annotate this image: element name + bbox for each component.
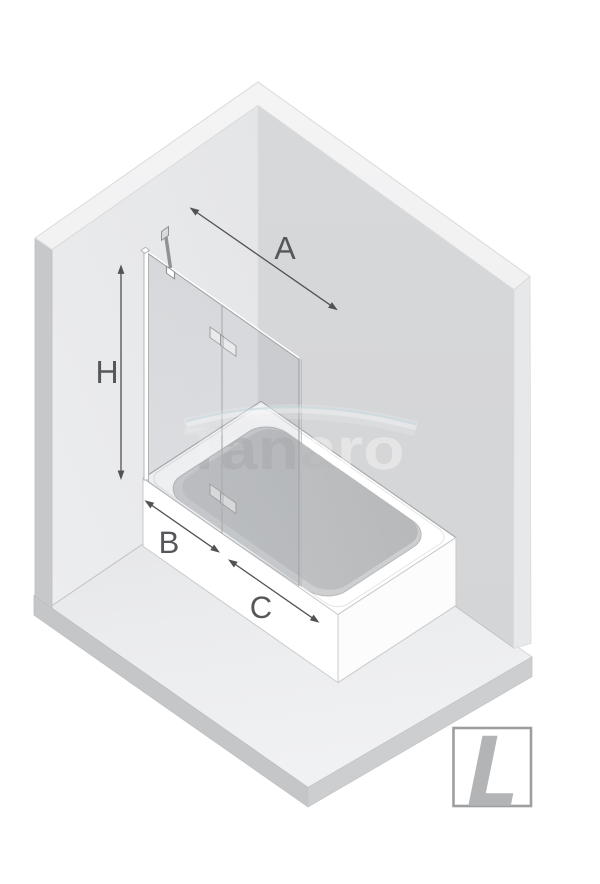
svg-text:C: C — [250, 590, 272, 625]
svg-text:A: A — [274, 230, 296, 266]
svg-text:H: H — [95, 354, 118, 390]
svg-text:B: B — [159, 525, 180, 560]
